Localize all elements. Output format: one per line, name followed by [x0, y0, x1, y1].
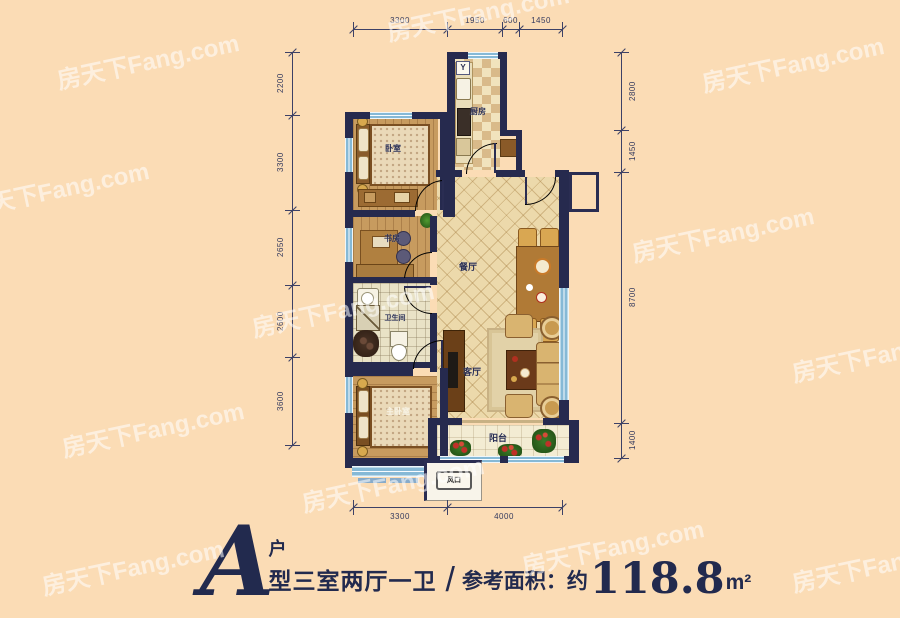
table-decor — [520, 368, 530, 378]
wall-segment — [496, 170, 525, 177]
dimension-label: 1450 — [525, 16, 557, 25]
dimension-line-left — [292, 52, 293, 445]
pillow — [358, 156, 369, 180]
room-label-balcony: 阳台 — [478, 431, 518, 444]
desk-chair — [396, 249, 411, 264]
room-label-dining: 餐厅 — [448, 260, 488, 273]
watermark: 房天下Fang.com — [53, 23, 242, 96]
dimension-label: 2200 — [276, 65, 288, 101]
bay-window — [352, 466, 428, 477]
window-code-chip — [358, 478, 386, 483]
balcony-flowers — [450, 440, 471, 456]
floorplan-page: { "watermark": { "text": "房天下Fang.com" }… — [0, 0, 900, 600]
window-code-chip — [390, 478, 418, 483]
area-value: 118.8 — [590, 562, 725, 596]
dimension-label: 2800 — [628, 73, 640, 109]
table-decor — [512, 356, 518, 362]
watermark: 房天下Fang.com — [58, 391, 247, 464]
wall-segment — [437, 418, 462, 425]
area-label: 参考面积：约 — [462, 565, 588, 595]
bedside-lamp — [357, 446, 368, 457]
dresser-item — [394, 192, 410, 203]
balcony-flowers — [532, 429, 556, 453]
watermark: 房天下Fang.com — [788, 316, 900, 389]
dimension-label: 3600 — [276, 383, 288, 419]
watermark: 房天下Fang.com — [628, 196, 817, 269]
dimension-label: 3300 — [380, 512, 420, 521]
door-leaf — [404, 286, 431, 288]
dimension-label: 1400 — [628, 422, 640, 458]
window — [370, 112, 412, 119]
master-bed — [370, 386, 432, 448]
dimension-label: 3300 — [380, 16, 420, 25]
kitchen-appliance — [456, 138, 471, 156]
armchair — [505, 314, 533, 338]
watermark: 房天下Fang.com — [0, 151, 152, 224]
room-label-study: 书房 — [370, 233, 414, 244]
bed — [370, 124, 430, 186]
sink-basin — [361, 292, 374, 305]
dimension-line-right — [621, 52, 622, 458]
table-decor — [511, 376, 517, 382]
window — [345, 228, 353, 262]
dimension-label: 4000 — [484, 512, 524, 521]
room-label-living: 客厅 — [452, 365, 492, 378]
dimension-line-top — [353, 29, 562, 30]
window — [345, 138, 353, 172]
plan-layout-text: 型三室两厅一卫 — [268, 562, 436, 596]
balcony-door-sill — [462, 420, 543, 423]
plan-type: 户 型三室两厅一卫 — [268, 535, 436, 596]
window — [468, 52, 498, 59]
armchair — [505, 394, 533, 418]
door-leaf — [494, 143, 496, 173]
watermark: 房天下Fang.com — [38, 529, 227, 602]
door-leaf — [525, 177, 527, 204]
room-label-bathroom: 卫生间 — [370, 313, 420, 323]
plan-letter: A — [200, 527, 270, 596]
room-label-kitchen: 厨房 — [458, 106, 498, 117]
kitchen-sink — [456, 78, 471, 100]
wall-segment — [345, 368, 413, 376]
pillow — [358, 390, 369, 413]
wall-segment — [345, 210, 415, 217]
plan-hu-char: 户 — [268, 535, 436, 561]
bathroom-plant — [353, 330, 379, 357]
vent-label: 风口 — [436, 471, 472, 490]
door-leaf — [441, 340, 443, 368]
plate — [526, 284, 533, 291]
dimension-label: 2650 — [276, 229, 288, 265]
door-leaf — [442, 180, 444, 210]
ac-platform — [569, 172, 599, 212]
pillow — [358, 416, 369, 439]
dimension-line-bottom — [353, 507, 562, 508]
room-label-bedroom: 卧室 — [368, 143, 418, 154]
plan-title: A 户 型三室两厅一卫 / 参考面积：约 118.8 m² — [200, 524, 751, 596]
area-unit: m² — [726, 571, 752, 595]
title-separator: / — [445, 565, 454, 596]
window — [345, 377, 353, 413]
dimension-label: 3300 — [276, 144, 288, 180]
dining-table — [516, 246, 560, 322]
dimension-label: 1950 — [455, 16, 495, 25]
wall-segment — [543, 418, 569, 425]
plate — [534, 258, 551, 275]
watermark: 房天下Fang.com — [788, 526, 900, 599]
bedside-lamp — [357, 378, 368, 389]
plate — [536, 292, 547, 303]
balcony-glass — [508, 456, 564, 463]
dimension-label: 1450 — [628, 133, 640, 169]
door-leaf — [404, 278, 431, 280]
watermark: 房天下Fang.com — [698, 26, 887, 99]
dimension-label: 2600 — [276, 303, 288, 339]
wall-segment — [430, 216, 437, 252]
dimension-label: 8700 — [628, 279, 640, 315]
wall-segment — [500, 52, 507, 136]
window — [559, 288, 569, 400]
wall-segment — [443, 210, 455, 217]
dimension-label: 600 — [496, 16, 525, 25]
wall-segment — [440, 368, 448, 466]
dresser-item — [364, 192, 376, 203]
room-label-master: 主卧室 — [372, 406, 424, 417]
gas-stove-icon: Y — [456, 61, 470, 75]
